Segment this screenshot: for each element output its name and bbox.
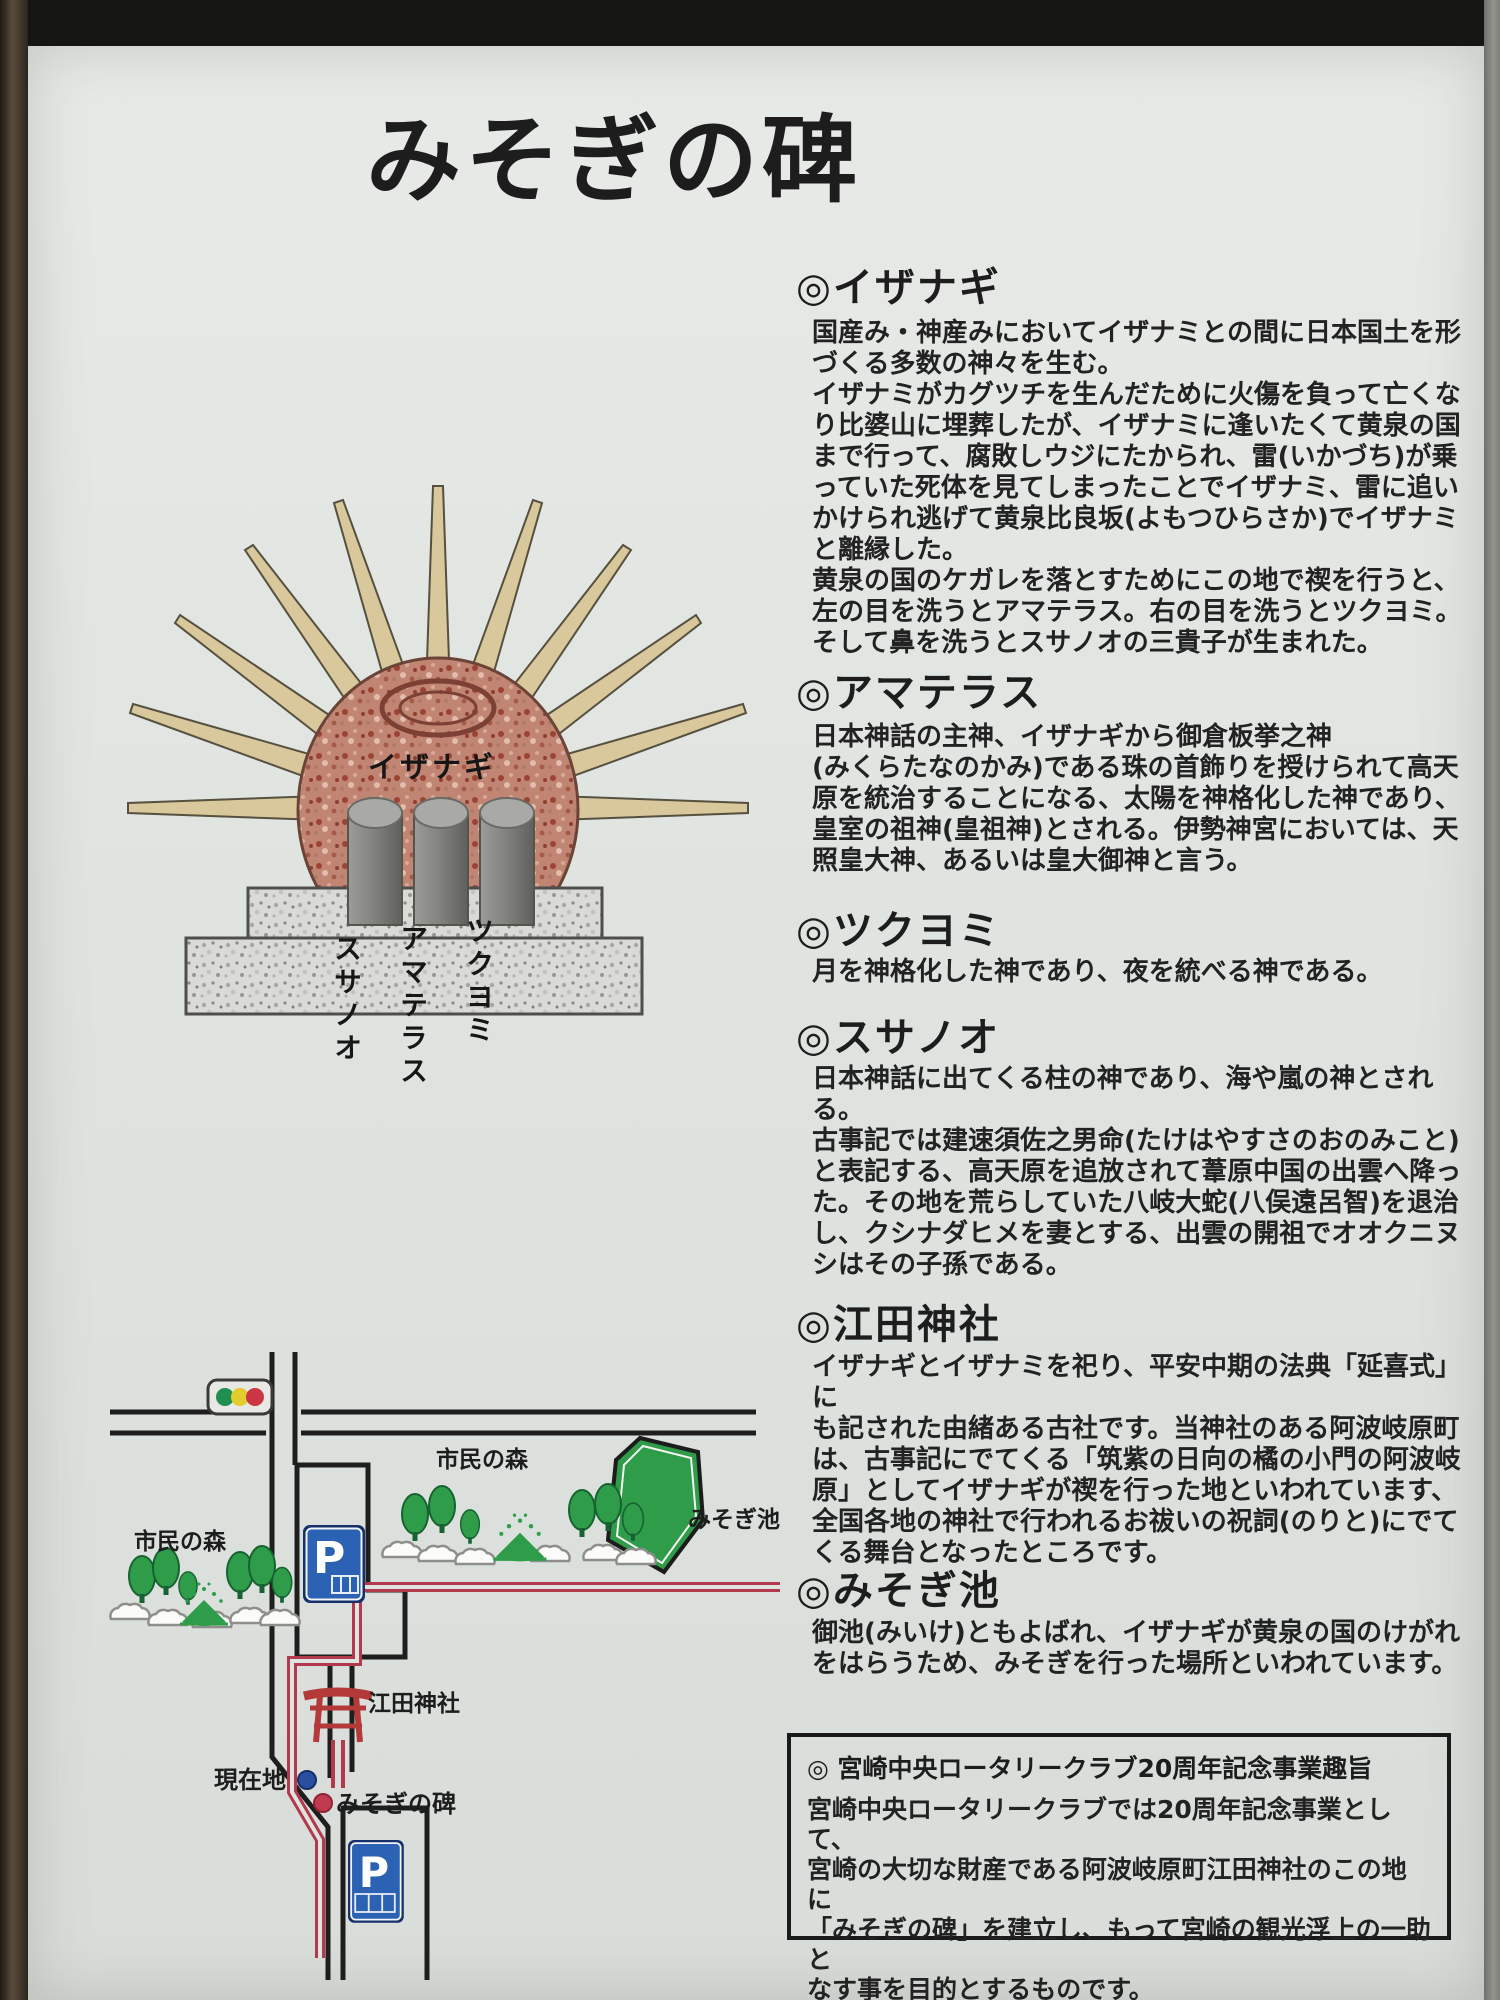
offering-cylinders — [348, 798, 534, 925]
section-heading-amaterasu: ◎アマテラス — [796, 660, 1042, 718]
section-heading-tsukuyomi: ◎ツクヨミ — [796, 898, 1001, 956]
sign-photo: みそぎの碑 — [0, 0, 1500, 2000]
svg-text:P: P — [359, 1849, 389, 1897]
section-heading-susanoo: ◎スサノオ — [796, 1005, 1000, 1063]
section-body-misogi-pond: 御池(みいけ)ともよばれ、イザナギが黄泉の国のけがれ をはらうため、みそぎを行っ… — [812, 1618, 1472, 1680]
frame-left-edge — [0, 0, 28, 2000]
map-label-forest-right: 市民の森 — [436, 1440, 528, 1474]
map-label-shrine: 江田神社 — [368, 1684, 460, 1718]
parking-sign-icon-2: P — [348, 1840, 404, 1923]
section-heading-izanagi: ◎イザナギ — [796, 255, 1001, 313]
section-body-susanoo: 日本神話に出てくる柱の神であり、海や嵐の神とされる。 古事記では建速須佐之男命(… — [812, 1064, 1472, 1281]
rotary-notice-box: ◎ 宮崎中央ロータリークラブ20周年記念事業趣旨 宮崎中央ロータリークラブでは2… — [787, 1733, 1451, 1940]
parking-sign-icon-1: P — [303, 1525, 365, 1603]
section-heading-eda-shrine: ◎江田神社 — [796, 1292, 1001, 1350]
section-body-amaterasu: 日本神話の主神、イザナギから御倉板挙之神 (みくらたなのかみ)である珠の首飾りを… — [812, 722, 1472, 877]
map-label-monument: みそぎの碑 — [336, 1784, 456, 1819]
access-map: P P — [80, 1340, 800, 2000]
section-body-eda-shrine: イザナギとイザナミを祀り、平安中期の法典「延喜式」に も記された由緒ある古社です… — [812, 1352, 1472, 1569]
frame-top-edge — [0, 0, 1500, 46]
traffic-light-icon — [208, 1380, 272, 1414]
section-body-tsukuyomi: 月を神格化した神であり、夜を統べる神である。 — [812, 957, 1472, 988]
frame-right-edge — [1484, 0, 1500, 2000]
sign-title: みそぎの碑 — [366, 84, 861, 221]
current-location-dot — [298, 1771, 316, 1789]
section-heading-misogi-pond: ◎みそぎ池 — [796, 1558, 1001, 1616]
pedestal-label-susanoo: スサノオ — [326, 934, 366, 1066]
pedestal-label-tsukuyomi: ツクヨミ — [458, 916, 498, 1048]
map-label-pond: みそぎ池 — [688, 1500, 780, 1534]
map-label-current-location: 現在地 — [214, 1760, 286, 1795]
monument-stone-label: イザナギ — [368, 744, 496, 786]
monument-location-dot — [314, 1794, 332, 1812]
pedestal-label-amaterasu: アマテラス — [392, 924, 432, 1089]
notice-body: 宮崎中央ロータリークラブでは20周年記念事業として、 宮崎の大切な財産である阿波… — [807, 1795, 1431, 2000]
section-body-izanagi: 国産み・神産みにおいてイザナミとの間に日本国土を形 づくる多数の神々を生む。 イ… — [812, 318, 1472, 659]
notice-heading: ◎ 宮崎中央ロータリークラブ20周年記念事業趣旨 — [807, 1749, 1431, 1785]
torii-icon — [304, 1692, 372, 1742]
map-label-forest-left: 市民の森 — [134, 1522, 226, 1556]
